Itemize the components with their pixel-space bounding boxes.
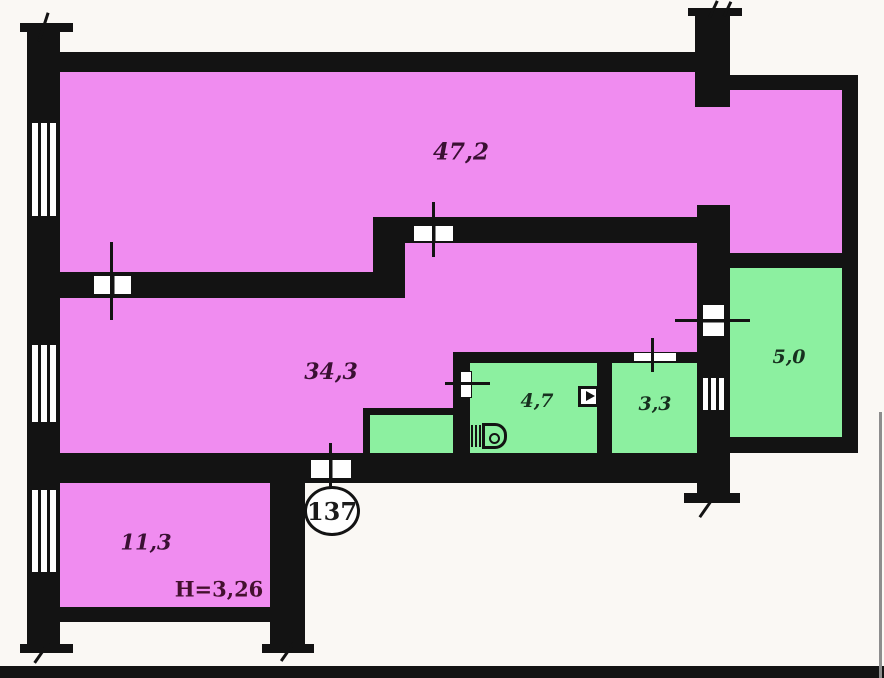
wall-switch-icon	[578, 386, 599, 407]
wall-arm-top	[730, 75, 858, 90]
room-label-11-3: 11,3	[120, 530, 171, 555]
door-axis	[432, 202, 435, 257]
wall-bath-wc-separator	[597, 363, 612, 453]
wall-hall-bottom	[55, 453, 730, 483]
lobby-fill	[370, 415, 460, 453]
wall-room11-bottom	[55, 607, 270, 622]
scan-edge-line	[879, 412, 882, 678]
wall-chimney	[695, 10, 730, 107]
wall-balcony-separator	[730, 253, 842, 268]
door-axis	[651, 338, 654, 372]
toilet-icon	[471, 423, 509, 450]
wall-bath-left	[453, 352, 470, 453]
wall-cap	[20, 23, 73, 32]
room-label-34-3: 34,3	[304, 359, 358, 385]
door-axis	[329, 443, 332, 488]
apartment-number: 137	[307, 497, 357, 526]
door-axis	[110, 242, 113, 320]
room-label-3-3: 3,3	[638, 393, 671, 415]
room-label-4-7: 4,7	[520, 390, 553, 412]
room-label-47-2: 47,2	[433, 139, 489, 166]
door-opening-icon	[633, 352, 677, 362]
door-axis	[675, 319, 750, 322]
floor-plan: 47,2 34,3 11,3 4,7 3,3 5,0 H=3,26 137	[0, 0, 884, 678]
apartment-number-badge: 137	[304, 486, 360, 536]
wall-room11-right	[270, 453, 305, 650]
door-axis	[445, 382, 490, 385]
bottom-band	[0, 666, 884, 678]
wall-right	[842, 75, 858, 453]
room-label-5-0: 5,0	[772, 346, 805, 368]
wall-balcony-bottom	[730, 437, 858, 453]
ceiling-height-label: H=3,26	[175, 577, 264, 602]
wall-top	[55, 52, 697, 72]
